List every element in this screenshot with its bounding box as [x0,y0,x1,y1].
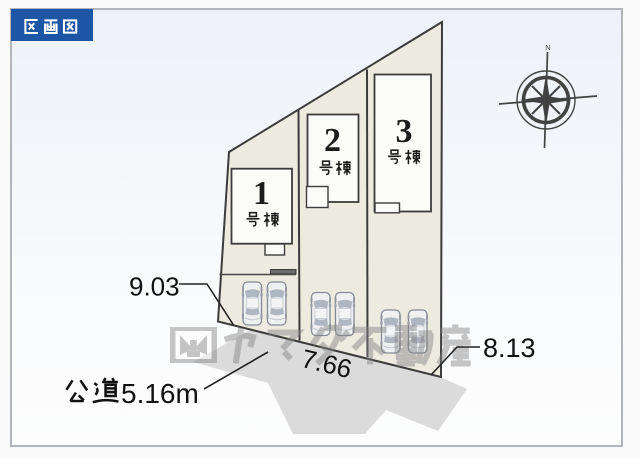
svg-text:9.03: 9.03 [129,272,180,302]
svg-text:3: 3 [396,113,413,150]
svg-text:5.16m: 5.16m [121,378,199,409]
svg-text:N: N [545,43,550,52]
svg-text:1: 1 [253,175,270,212]
svg-text:2: 2 [324,122,341,159]
svg-text:8.13: 8.13 [483,333,536,363]
